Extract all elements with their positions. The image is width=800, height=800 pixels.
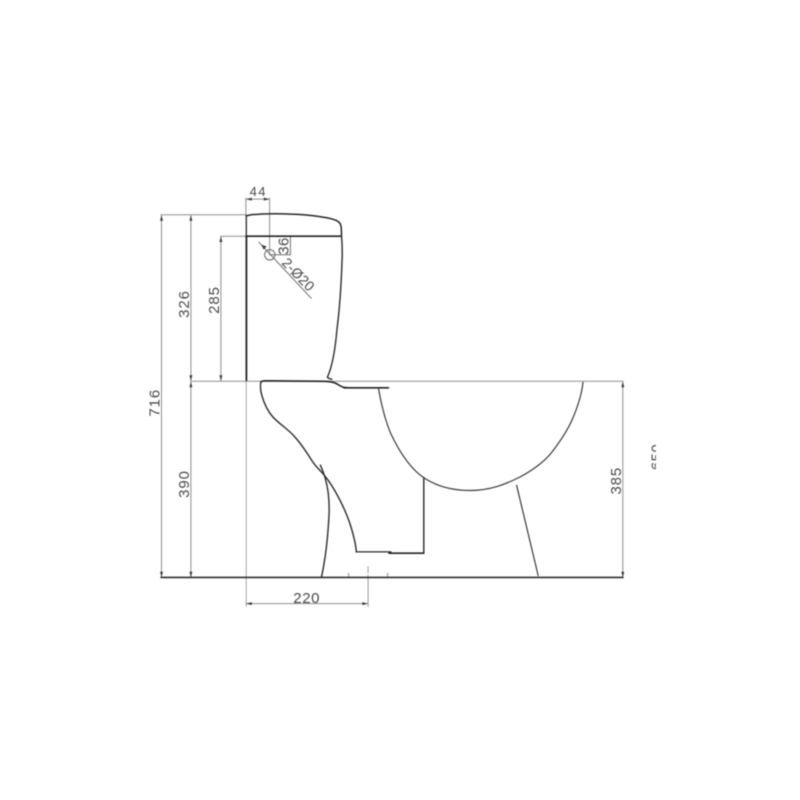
svg-text:385: 385 — [608, 467, 625, 495]
svg-text:390: 390 — [176, 470, 193, 498]
svg-text:44: 44 — [250, 184, 267, 199]
svg-text:716: 716 — [147, 389, 164, 417]
svg-text:326: 326 — [176, 290, 193, 318]
svg-text:285: 285 — [206, 286, 223, 314]
svg-text:36: 36 — [276, 237, 293, 255]
svg-text:220: 220 — [293, 590, 320, 607]
svg-text:2-Ø20: 2-Ø20 — [279, 254, 318, 294]
